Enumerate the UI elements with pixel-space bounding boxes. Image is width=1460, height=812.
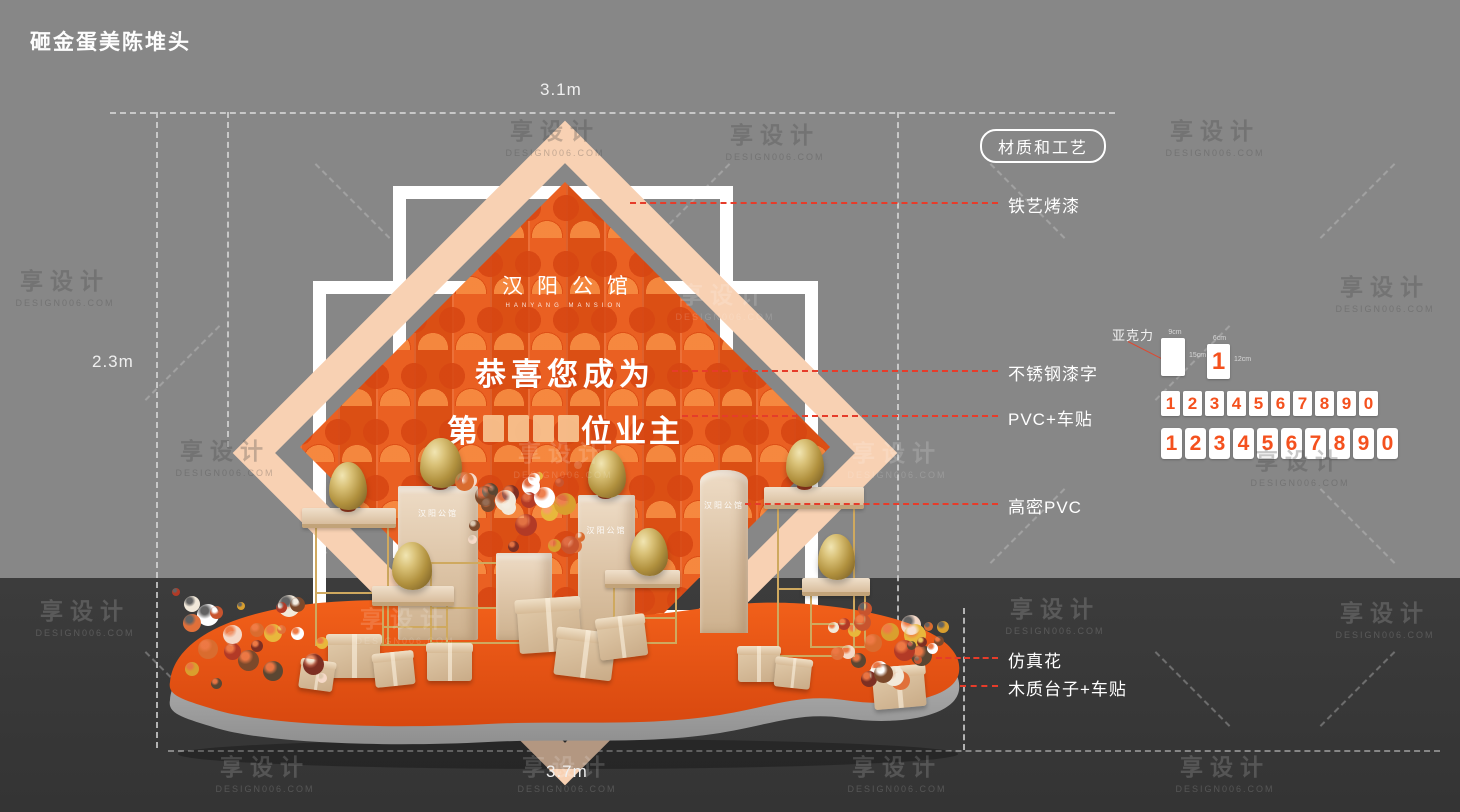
flower-dot [528,473,540,485]
flower-dot [316,637,328,649]
pedestal-brand: 汉阳公馆 [700,500,748,511]
callout-line [936,657,998,659]
dimension-height-left: 2.3m [92,352,134,372]
digit-tile: 2 [1183,391,1202,416]
flower-dot [937,621,949,633]
flower-dot [488,485,498,495]
flower-dot [515,514,537,536]
flower-cluster-left [172,588,342,703]
acrylic-digit-row-1: 1234567890 [1161,391,1381,416]
callout-line [630,202,998,204]
diagonal-dash-decor [1320,163,1396,239]
site-watermark: 享设计DESIGN006.COM [690,116,860,162]
acrylic-blank-tile [1161,338,1185,376]
digit-tile: 9 [1353,428,1374,459]
flower-dot [881,623,899,641]
digit-tile: 0 [1377,428,1398,459]
digit-tile: 9 [1337,391,1356,416]
acrylic-digit-row-2: 1234567890 [1161,428,1401,459]
digit-tile: 6 [1271,391,1290,416]
callout-label-dense-pvc: 高密PVC [1008,493,1082,518]
pedestal-cylinder-right: 汉阳公馆 [700,470,748,633]
digit-tile: 3 [1205,391,1224,416]
golden-egg [818,534,855,580]
flower-dot [277,625,286,634]
flower-dot [561,536,579,554]
golden-egg [329,462,367,510]
site-watermark: 享设计DESIGN006.COM [1130,112,1300,158]
flower-dot [481,498,495,512]
number-placeholder [483,415,504,442]
callout-line [682,415,998,417]
flower-dot [468,535,477,544]
flower-dot [828,622,839,633]
dimension-line-left-inner [227,112,229,447]
flower-dot [534,487,555,508]
owner-suffix: 位业主 [581,406,683,451]
golden-egg [630,528,668,576]
owner-line: 第 位业主 [300,406,830,451]
flower-dot [250,623,264,637]
flower-dot [924,622,933,631]
number-placeholder [508,415,529,442]
callout-label-steel-letters: 不锈钢漆字 [1008,360,1098,385]
flower-dot [917,637,927,647]
flower-dot [198,639,218,659]
materials-title-pill: 材质和工艺 [980,129,1106,163]
flower-dot [555,478,564,487]
digit-tile: 5 [1257,428,1278,459]
digit-tile: 8 [1315,391,1334,416]
flower-dot [838,618,850,630]
tick-label: 12cm [1234,356,1251,363]
tick-label: 6cm [1208,335,1231,342]
table-top-right [802,578,870,596]
golden-egg [392,542,432,590]
flower-dot [210,606,223,619]
number-placeholder [558,415,579,442]
digit-tile: 5 [1249,391,1268,416]
acrylic-sample-digit-tile: 1 [1207,344,1230,379]
callout-line [672,370,998,372]
digit-tile: 4 [1233,428,1254,459]
callout-line [960,685,998,687]
callout-label-artificial-flowers: 仿真花 [1008,647,1062,672]
gold-stand-small [382,602,448,646]
diagonal-dash-decor [1320,488,1396,564]
digit-tile: 1 [1161,391,1180,416]
digit-tile: 3 [1209,428,1230,459]
digit-tile: 7 [1293,391,1312,416]
flower-dot [291,627,304,640]
flower-dot [864,634,882,652]
digit-tile: 2 [1185,428,1206,459]
flower-dot [185,662,199,676]
design-sheet: 砸金蛋美陈堆头 3.1m 2.3m 3.7m 汉阳公馆 HANYANG MANS… [0,0,1460,812]
callout-label-pvc-sticker: PVC+车贴 [1008,405,1093,430]
digit-tile: 8 [1329,428,1350,459]
flower-dot [290,597,305,612]
acrylic-label: 亚克力 [1112,325,1154,344]
flower-dot [574,461,582,469]
tick-label: 9cm [1163,329,1187,336]
golden-egg [786,439,824,487]
diagonal-dash-decor [315,163,391,239]
page-title: 砸金蛋美陈堆头 [30,26,191,56]
digit-tile: 0 [1359,391,1378,416]
dimension-width-bottom: 3.7m [546,762,588,782]
site-watermark: 享设计DESIGN006.COM [1300,268,1460,314]
flower-dot [831,647,844,660]
flower-dot [183,614,201,632]
flower-dot [276,602,287,613]
dimension-width-top: 3.1m [540,80,582,100]
gift-box [774,656,813,690]
flower-dot [914,656,922,664]
dimension-line-top [110,112,1115,114]
flower-dot [874,664,893,683]
flower-dot [469,520,480,531]
flower-dot [854,614,871,631]
flower-dot [263,661,283,681]
digit-tile: 1 [1161,428,1182,459]
callout-label-wood-table: 木质台子+车贴 [1008,675,1127,700]
flower-dot [224,643,241,660]
tick-label: 15cm [1189,352,1206,359]
flower-dot [237,602,245,610]
flower-dot [501,500,516,515]
flower-dot [548,539,561,552]
flower-dot [508,541,519,552]
stand-plate-right [764,487,864,509]
flower-dot [238,650,259,671]
callout-label-iron-paint: 铁艺烤漆 [1008,192,1080,217]
flower-dot [455,472,474,491]
site-watermark: 享设计DESIGN006.COM [0,262,150,308]
flower-dot [927,643,938,654]
flower-cluster-right [824,596,964,696]
flower-dot [907,641,916,650]
gift-box [427,643,472,681]
callout-line [745,503,998,505]
digit-tile: 4 [1227,391,1246,416]
gift-box [596,613,649,661]
digit-tile: 7 [1305,428,1326,459]
flower-dot [251,640,263,652]
flower-bouquet-center [452,460,602,570]
number-placeholder [533,415,554,442]
flower-dot [554,493,576,515]
flower-dot [211,678,222,689]
flower-dot [223,625,242,644]
flower-dot [172,588,180,596]
gift-box [372,650,415,688]
flower-dot [303,654,324,675]
flower-dot [317,673,327,683]
digit-tile: 6 [1281,428,1302,459]
